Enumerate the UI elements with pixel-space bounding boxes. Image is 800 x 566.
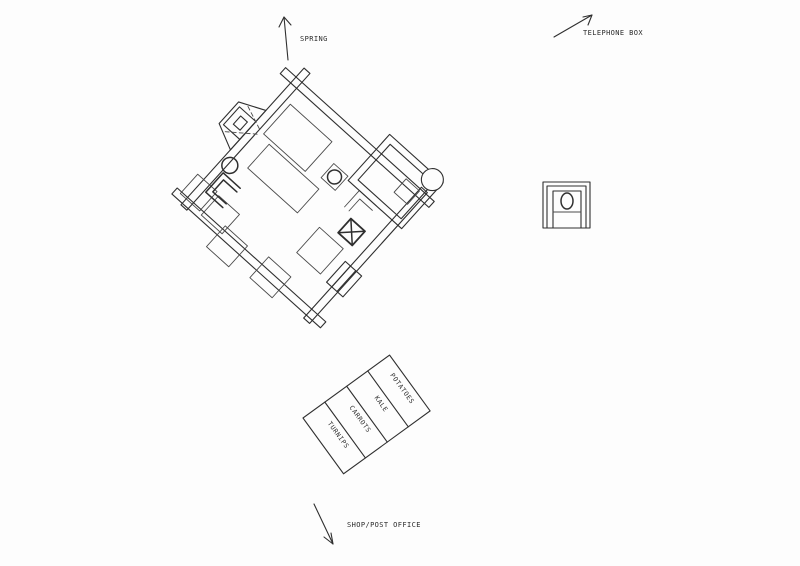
spring-label: SPRING — [300, 35, 328, 43]
window-nw — [180, 174, 217, 211]
door-frame — [327, 261, 362, 297]
hand-drawn-site-plan: SPRING TELEPHONE BOX — [0, 0, 800, 566]
cottage-wall-nw — [181, 68, 310, 210]
cottage-floor-plan — [152, 40, 451, 339]
spring-arrow-shaft — [284, 17, 288, 60]
cottage-wall-ne — [280, 68, 434, 208]
shop-post-office-label: SHOP/POST OFFICE — [347, 521, 421, 529]
armchair — [206, 173, 240, 208]
door-se-steps — [327, 261, 362, 297]
garden-row-label-carrots: CARROTS — [348, 404, 373, 434]
telephone-box-label: TELEPHONE BOX — [583, 29, 643, 37]
extension-fixture — [394, 179, 419, 204]
fireplace-box — [223, 107, 255, 140]
vegetable-garden: TURNIPS CARROTS KALE POTATOES — [303, 355, 430, 474]
spring-arrow — [279, 17, 291, 60]
shop-post-office-arrow — [314, 504, 333, 544]
outhouse-plan — [543, 182, 590, 228]
site-plan-svg: SPRING TELEPHONE BOX — [0, 0, 800, 566]
fireplace-flue — [233, 116, 247, 130]
corner-step-2 — [349, 199, 372, 222]
shop-arrow-shaft — [314, 504, 333, 544]
door-step-line-1 — [332, 266, 351, 287]
table — [248, 144, 319, 213]
chimney-breast — [211, 93, 266, 150]
cottage-wall-se — [304, 187, 428, 323]
crate-x-box — [338, 219, 365, 246]
door-step-line-2 — [337, 271, 356, 292]
outhouse-outer-wall — [543, 182, 590, 228]
window-sw-2 — [250, 257, 291, 298]
garden-row-label-turnips: TURNIPS — [326, 420, 351, 450]
spring-annotation — [279, 17, 291, 60]
hearth-dashed-line-lower — [225, 117, 258, 149]
corner-steps — [345, 191, 377, 223]
corner-step-1 — [345, 191, 377, 223]
bed — [297, 227, 344, 274]
outhouse-seat-hole — [561, 193, 573, 209]
shop-post-office-annotation — [314, 504, 333, 544]
garden-row-label-potatoes: POTATOES — [388, 372, 416, 406]
pot-stand-base — [321, 164, 348, 191]
pot-stand — [321, 164, 348, 191]
